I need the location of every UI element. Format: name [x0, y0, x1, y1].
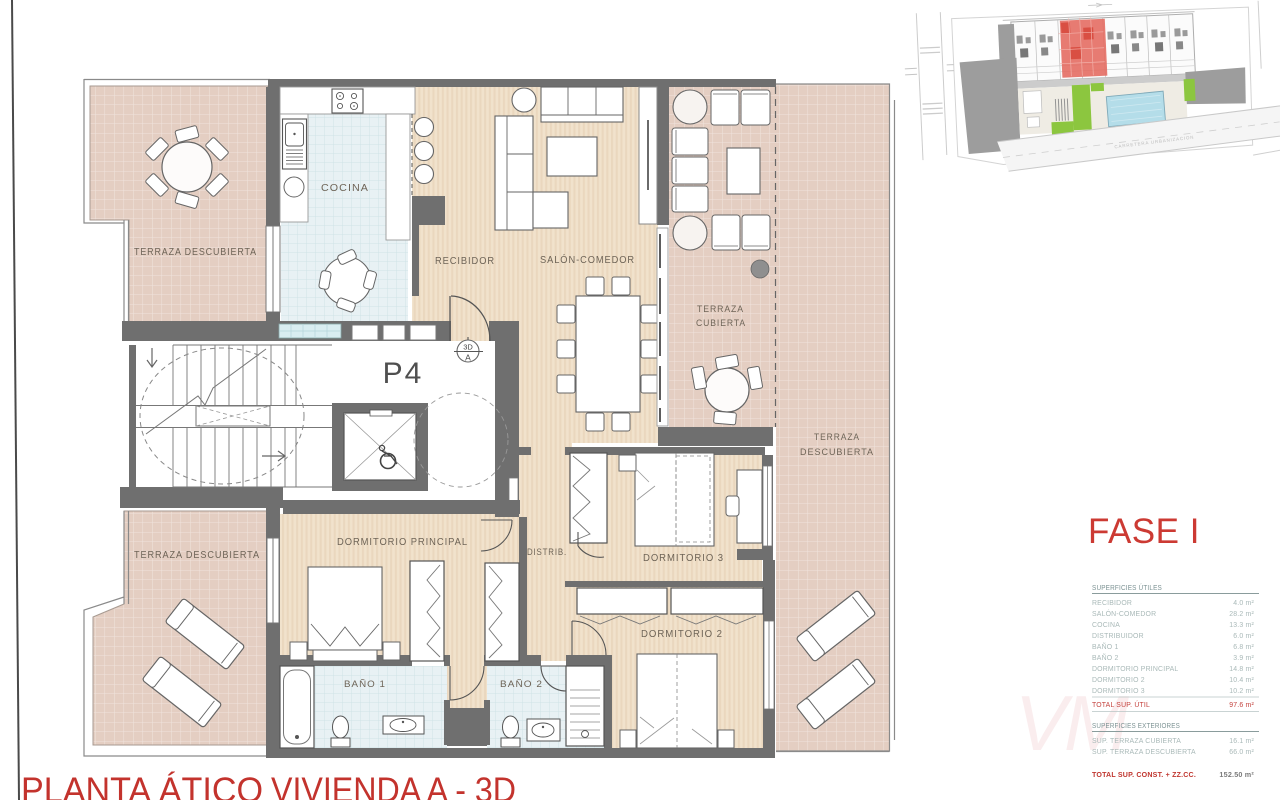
- svg-text:66.0 m²: 66.0 m²: [1229, 749, 1254, 756]
- svg-text:A: A: [465, 353, 471, 363]
- svg-text:VIVIENDA A - 3D: VIVIENDA A - 3D: [271, 771, 516, 800]
- svg-text:P4: P4: [383, 357, 424, 390]
- svg-text:RECIBIDOR: RECIBIDOR: [435, 256, 495, 267]
- svg-text:16.1 m²: 16.1 m²: [1229, 738, 1254, 745]
- svg-text:BAÑO 2: BAÑO 2: [1092, 653, 1118, 662]
- svg-text:DORMITORIO PRINCIPAL: DORMITORIO PRINCIPAL: [1092, 666, 1178, 673]
- svg-text:14.8 m²: 14.8 m²: [1229, 666, 1254, 673]
- svg-text:SUPERFICIES EXTERIORES: SUPERFICIES EXTERIORES: [1092, 721, 1180, 730]
- svg-text:COCINA: COCINA: [321, 183, 369, 194]
- svg-text:4.0 m²: 4.0 m²: [1233, 600, 1254, 607]
- svg-text:BAÑO 2: BAÑO 2: [500, 679, 543, 690]
- svg-text:SUP. TERRAZA DESCUBIERTA: SUP. TERRAZA DESCUBIERTA: [1092, 749, 1196, 756]
- svg-text:TOTAL SUP. ÚTIL: TOTAL SUP. ÚTIL: [1092, 700, 1150, 709]
- svg-text:6.8 m²: 6.8 m²: [1233, 644, 1254, 651]
- svg-text:COCINA: COCINA: [1092, 622, 1120, 629]
- svg-text:PLANTA ÁTICO: PLANTA ÁTICO: [21, 771, 263, 800]
- svg-text:28.2 m²: 28.2 m²: [1229, 611, 1254, 618]
- svg-text:3D: 3D: [463, 343, 473, 352]
- svg-text:BAÑO 1: BAÑO 1: [344, 679, 386, 690]
- svg-text:DORMITORIO 2: DORMITORIO 2: [1092, 677, 1145, 684]
- svg-text:DISTRIBUIDOR: DISTRIBUIDOR: [1092, 633, 1144, 640]
- svg-text:SUP. TERRAZA CUBIERTA: SUP. TERRAZA CUBIERTA: [1092, 738, 1181, 745]
- svg-text:3.9 m²: 3.9 m²: [1233, 655, 1254, 662]
- svg-text:CUBIERTA: CUBIERTA: [696, 317, 746, 328]
- svg-text:10.2 m²: 10.2 m²: [1229, 688, 1254, 695]
- svg-text:RECIBIDOR: RECIBIDOR: [1092, 600, 1132, 607]
- svg-text:DORMITORIO 2: DORMITORIO 2: [641, 629, 723, 640]
- svg-text:6.0 m²: 6.0 m²: [1233, 633, 1254, 640]
- svg-text:FASE I: FASE I: [1088, 512, 1200, 551]
- svg-text:DORMITORIO PRINCIPAL: DORMITORIO PRINCIPAL: [337, 537, 468, 548]
- svg-text:SALÓN-COMEDOR: SALÓN-COMEDOR: [540, 253, 635, 266]
- svg-text:10.4 m²: 10.4 m²: [1229, 677, 1254, 684]
- svg-text:DESCUBIERTA: DESCUBIERTA: [800, 447, 874, 457]
- svg-text:TOTAL SUP. CONST. + ZZ.CC.: TOTAL SUP. CONST. + ZZ.CC.: [1092, 770, 1196, 779]
- svg-text:TERRAZA DESCUBIERTA: TERRAZA DESCUBIERTA: [134, 550, 260, 561]
- svg-text:DORMITORIO 3: DORMITORIO 3: [643, 553, 724, 564]
- svg-text:DORMITORIO 3: DORMITORIO 3: [1092, 688, 1145, 695]
- svg-text:152.50 m²: 152.50 m²: [1219, 770, 1254, 779]
- svg-text:DISTRIB.: DISTRIB.: [527, 547, 567, 558]
- svg-text:BAÑO 1: BAÑO 1: [1092, 642, 1118, 651]
- svg-text:TERRAZA: TERRAZA: [814, 432, 860, 442]
- svg-text:TERRAZA DESCUBIERTA: TERRAZA DESCUBIERTA: [134, 247, 257, 258]
- svg-text:TERRAZA: TERRAZA: [697, 303, 744, 314]
- svg-text:97.6 m²: 97.6 m²: [1229, 702, 1254, 709]
- svg-text:13.3 m²: 13.3 m²: [1229, 622, 1254, 629]
- svg-text:SALÓN-COMEDOR: SALÓN-COMEDOR: [1092, 609, 1156, 618]
- svg-text:SUPERFICIES ÚTILES: SUPERFICIES ÚTILES: [1092, 583, 1162, 592]
